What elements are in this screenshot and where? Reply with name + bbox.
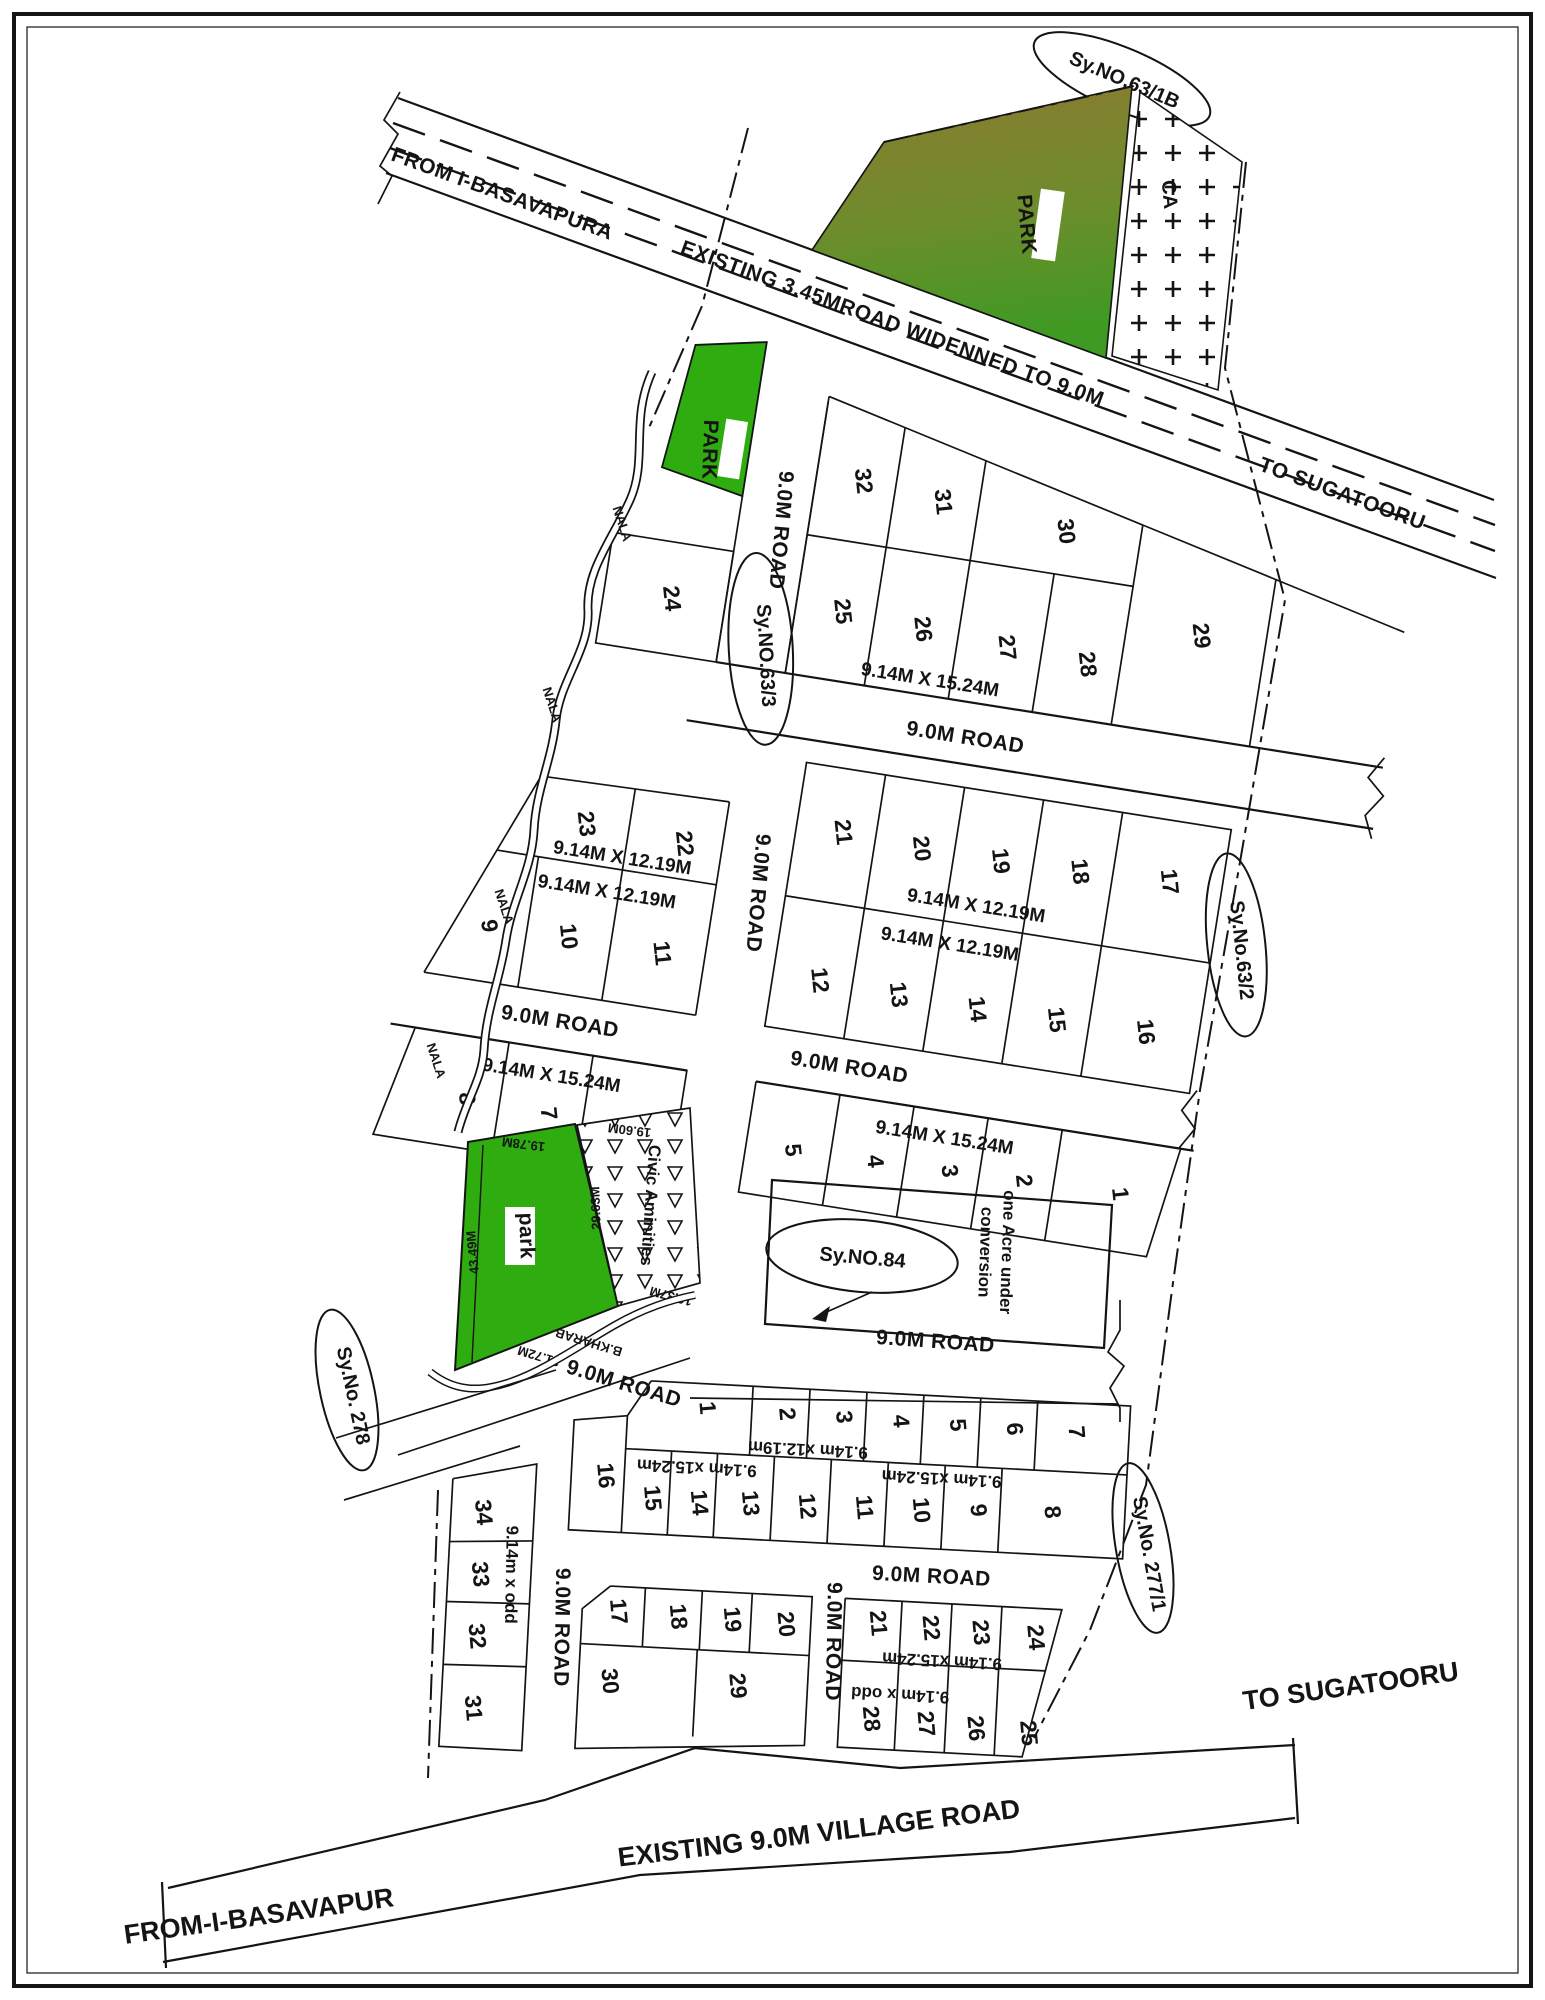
plot-number: 28 [858, 1705, 886, 1733]
dim-label: 9.14m x12.19m [747, 1437, 868, 1462]
plot-number: 7 [536, 1106, 563, 1121]
ca-plot: CA [1112, 92, 1242, 390]
survey-label-63-2: Sy.No.63/2 [1225, 899, 1257, 1000]
plot-number: 3 [831, 1409, 858, 1424]
survey-ellipse-277-1: Sy.No. 277/1 [1101, 1459, 1184, 1638]
plot-number: 13 [737, 1489, 765, 1517]
boundary-left-strip [428, 1490, 438, 1778]
plot-number: 31 [929, 488, 958, 516]
plot-number: 17 [605, 1598, 633, 1626]
plot-number: 2 [774, 1406, 801, 1421]
plot-number: 32 [850, 467, 879, 495]
road-label-village: EXISTING 9.0M VILLAGE ROAD [616, 1793, 1022, 1872]
plot-number: 16 [1132, 1018, 1161, 1046]
dim-label: 9.14M X 15.24M [874, 1117, 1015, 1160]
svg-text:Sy.No. 277/1: Sy.No. 277/1 [1128, 1495, 1170, 1613]
plot-number: 18 [1066, 857, 1095, 885]
plot-number: 10 [555, 922, 584, 950]
acre-label: conversion [974, 1207, 996, 1298]
plot-number: 2 [1011, 1173, 1038, 1188]
road-label-9m: 9.0M ROAD [789, 1047, 910, 1088]
plot-number: 24 [1022, 1623, 1050, 1651]
dim-label: 9.14M X 12.19M [536, 871, 677, 914]
road-label-9m: 9.0M ROAD [764, 470, 797, 590]
plot-number: 8 [1039, 1504, 1066, 1519]
plot-number: 21 [865, 1609, 893, 1637]
plot-number: 27 [993, 633, 1022, 661]
road-label-9m: 9.0M ROAD [499, 1001, 620, 1042]
plot-number: 20 [773, 1610, 801, 1638]
nala-label: NALA [424, 1041, 450, 1081]
small-park-label: PARK [697, 419, 722, 480]
plot-number: 5 [945, 1417, 972, 1432]
plot-number: 19 [719, 1606, 747, 1634]
village-road: EXISTING 9.0M VILLAGE ROAD FROM-I-BASAVA… [122, 1656, 1461, 1968]
plot-number: 29 [724, 1672, 752, 1700]
plot-number: 31 [460, 1694, 488, 1722]
road-label-9m: 9.0M ROAD [549, 1568, 574, 1687]
plot-number: 3 [937, 1163, 964, 1178]
road-label-9m: 9.0M ROAD [741, 833, 774, 953]
lower-park-label: park [514, 1212, 539, 1259]
bottom-grid: 1 2 3 4 5 6 7 9.14m x12.19m 9.14m x15.24… [439, 1371, 1131, 1782]
plot-number: 1 [1107, 1186, 1134, 1202]
plot-number: 26 [909, 615, 938, 643]
acre-label: one Acre under [996, 1190, 1019, 1315]
plot-number: 30 [1052, 517, 1081, 545]
road-label-9m: 9.0M ROAD [564, 1355, 684, 1412]
plot-number: 25 [829, 597, 858, 625]
layout-plan-svg: FROM I-BASAVAPURA EXISTING 3.45MROAD WID… [0, 0, 1545, 2000]
plot-number: 4 [862, 1153, 889, 1169]
plot-number: 28 [1074, 650, 1103, 678]
plot-number: 27 [913, 1710, 941, 1738]
plot-number: 9 [965, 1503, 992, 1518]
ca-label: CA [1157, 179, 1181, 210]
layout-plan-sheet: FROM I-BASAVAPURA EXISTING 3.45MROAD WID… [0, 0, 1545, 2000]
plot-number: 4 [888, 1413, 915, 1428]
plot-number: 17 [1156, 868, 1185, 896]
plot-number: 15 [1043, 1006, 1072, 1034]
plot-number: 10 [908, 1496, 936, 1524]
plot-number: 14 [964, 995, 993, 1023]
dim-label: 29.63M [587, 1186, 604, 1230]
survey-ellipse-278: Sy.No. 278 [304, 1304, 391, 1476]
dim-label: 9.14M X 12.19M [906, 885, 1047, 928]
plot-number: 22 [671, 829, 700, 857]
plot-number: 6 [1002, 1421, 1029, 1436]
plot-number: 11 [648, 940, 676, 967]
road-label-from-basavapura: FROM I-BASAVAPURA [388, 143, 616, 245]
plot-number: 12 [794, 1492, 822, 1520]
plot-number: 33 [467, 1560, 495, 1588]
plot-number: 13 [885, 981, 914, 1009]
plot-number: 21 [830, 818, 859, 846]
road-label-9m: 9.0M ROAD [871, 1562, 991, 1591]
plot-number: 23 [573, 810, 602, 838]
plot-number: 22 [918, 1614, 946, 1642]
plot-number: 5 [780, 1142, 807, 1158]
junction-road-edge [344, 1446, 520, 1500]
plot-number: 32 [464, 1622, 492, 1650]
plot-number: 34 [470, 1498, 498, 1526]
plot-number: 1 [694, 1400, 721, 1415]
dim-label: 9.14m x15.24m [881, 1466, 1002, 1491]
dim-label: 9.14m x odd [501, 1525, 522, 1624]
plot-number: 25 [1015, 1719, 1043, 1747]
dim-label: 9.14m x odd [851, 1683, 950, 1707]
plot-number: 30 [596, 1667, 624, 1695]
plot-number: 18 [665, 1603, 693, 1631]
dim-label: 9.14m x15.24m [636, 1455, 757, 1480]
plot-number: 9 [476, 918, 503, 933]
plot-number: 16 [592, 1462, 620, 1490]
plot-number: 11 [851, 1494, 879, 1521]
plot-number: 14 [686, 1489, 714, 1517]
plot-number: 23 [967, 1619, 995, 1647]
dim-label: 9.14m x15.24m [882, 1648, 1003, 1673]
road-label-9m: 9.0M ROAD [905, 717, 1026, 758]
road-label-to-sugatooru-bottom: TO SUGATOORU [1241, 1656, 1461, 1716]
plot-number: 20 [908, 834, 937, 862]
survey-label-63-3: Sy.NO.63/3 [752, 603, 779, 707]
plot-number: 24 [658, 584, 687, 612]
plot-number: 7 [1064, 1425, 1091, 1440]
survey-label-84: Sy.NO.84 [819, 1243, 908, 1273]
plot-number: 15 [639, 1484, 667, 1512]
plot-number: 12 [806, 966, 835, 994]
road-label-9m: 9.0M ROAD [875, 1326, 995, 1357]
plot-number: 26 [962, 1714, 990, 1742]
plot-number: 29 [1188, 622, 1217, 650]
plot-number: 19 [987, 847, 1016, 875]
